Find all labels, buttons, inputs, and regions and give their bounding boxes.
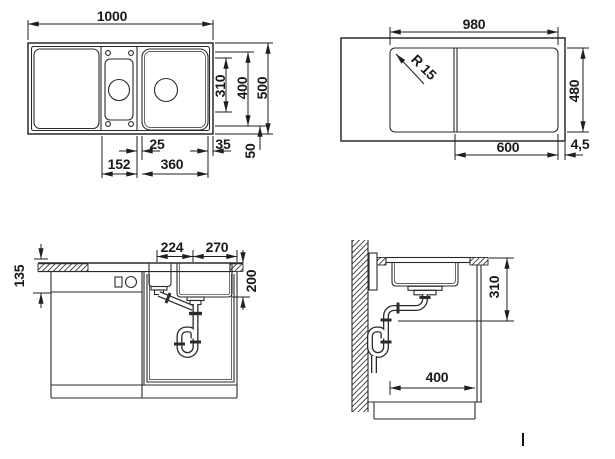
tap-hole [129,51,134,56]
wall-batten [369,253,377,290]
drawing-canvas [0,0,615,459]
sink-outline [341,38,565,141]
countertop-left [377,258,386,266]
countertop-left [38,264,88,272]
sink-rim-section [386,258,470,263]
radius-leader [396,54,424,84]
side-view-dimensions [390,258,514,395]
wall [352,240,368,412]
overflow-window [115,277,122,287]
small-bowl [105,59,133,120]
main-bowl [142,49,208,130]
drain-flange [408,286,442,290]
countertop-right [470,258,488,266]
main-bowl-drain [155,79,178,102]
drain-plumbing [159,293,202,355]
drain-plumbing [370,295,431,374]
top-view-drawing [28,20,273,178]
tap-hole [106,122,111,127]
tap-hole [129,122,134,127]
bowl-section [392,263,458,287]
small-bowl-drain [109,80,130,101]
tap-hole [106,51,111,56]
front-view-drawing [33,244,250,398]
base-shell [390,48,558,132]
drainboard [34,49,99,129]
underside-view-drawing [341,27,589,160]
side-view-drawing [352,240,514,419]
small-bowl-section [149,263,171,287]
main-bowl-section [177,263,232,297]
scan-artifact-mark [522,433,524,446]
sink-dimension-drawing: 1000 310 400 500 25 35 50 152 360 980 R … [0,0,615,459]
underside-view-dimensions [390,27,589,160]
drain-remote-knob [126,277,137,288]
